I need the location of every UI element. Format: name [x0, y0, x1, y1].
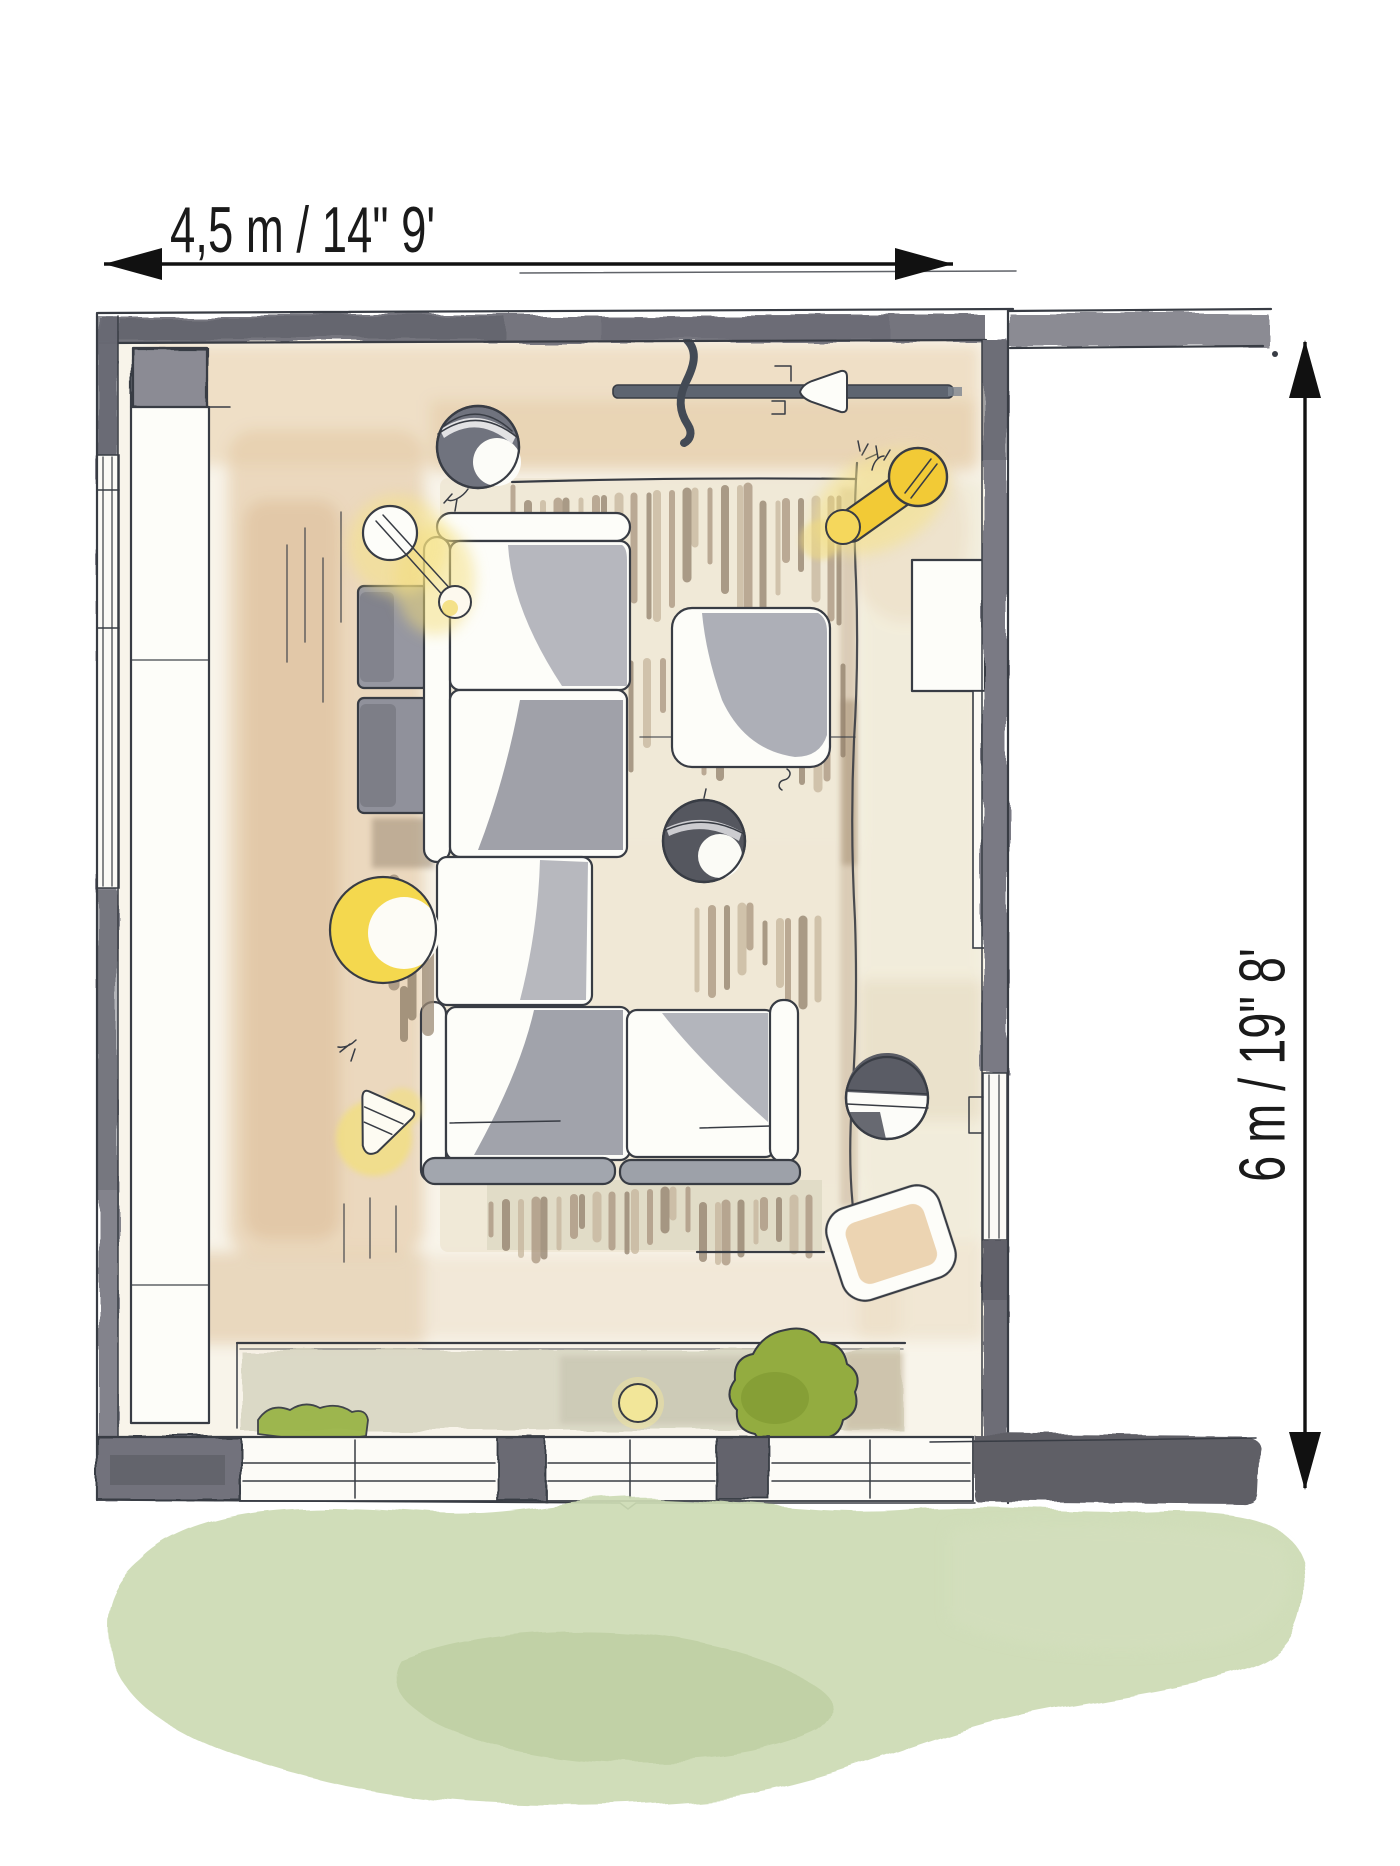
terrace-lamp-dot	[612, 1377, 664, 1429]
side-console	[912, 560, 985, 691]
floorplan-illustration: 4,5 m / 14" 9' 6 m / 19" 8'	[0, 0, 1400, 1866]
depth-dimension-label: 6 m / 19" 8'	[1225, 948, 1300, 1182]
top-wall-extension	[1008, 309, 1278, 357]
depth-dimension-arrow	[1289, 340, 1321, 1490]
width-dimension-label: 4,5 m / 14" 9'	[170, 192, 435, 267]
left-wall	[97, 313, 119, 1502]
lawn	[107, 1498, 1304, 1806]
top-wall	[98, 271, 1016, 343]
bottom-right-wall	[973, 1434, 1260, 1504]
coffee-table	[672, 608, 830, 790]
left-wall-cabinet	[131, 407, 209, 1423]
floor-plan-canvas	[0, 0, 1400, 1866]
bottom-wall-windows	[98, 1434, 1260, 1509]
pendant-sphere-right	[846, 1053, 928, 1139]
